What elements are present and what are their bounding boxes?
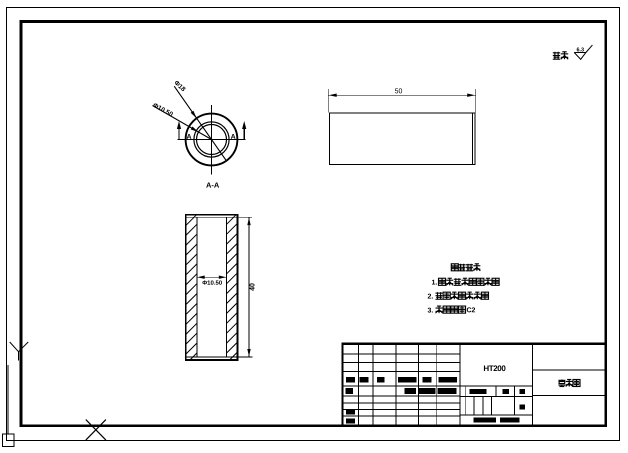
svg-text:A: A [231, 134, 236, 141]
svg-text:6.3: 6.3 [576, 47, 584, 53]
svg-text:HT200: HT200 [483, 364, 506, 373]
svg-text:Φ10.50: Φ10.50 [202, 281, 223, 287]
svg-text:A: A [186, 134, 191, 141]
svg-text:Φ10.50: Φ10.50 [152, 102, 175, 119]
svg-text:C2: C2 [466, 307, 475, 314]
svg-text:40: 40 [249, 283, 256, 291]
svg-text:50: 50 [395, 88, 403, 95]
svg-text:1.: 1. [431, 280, 437, 287]
svg-text:3.: 3. [427, 308, 433, 315]
svg-text:Φ18: Φ18 [172, 80, 186, 94]
svg-text:A-A: A-A [206, 181, 220, 190]
svg-text:2.: 2. [427, 294, 433, 301]
